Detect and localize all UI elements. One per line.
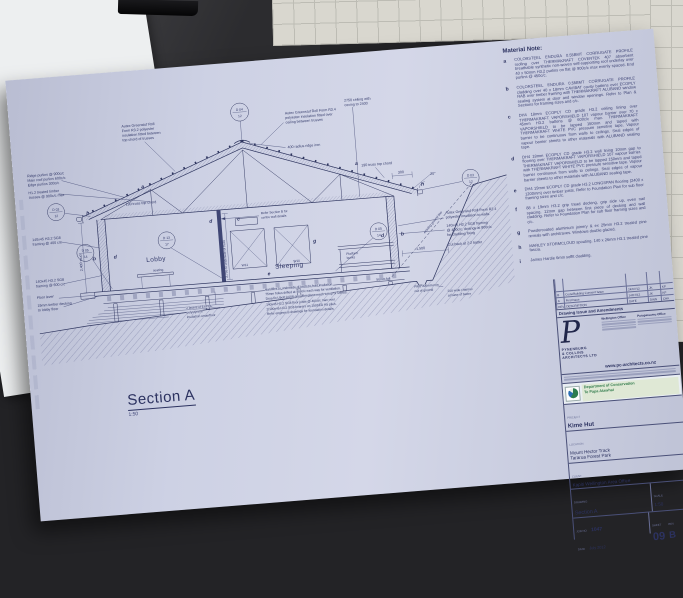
svg-text:d: d — [381, 233, 385, 239]
architect-logo-initial: P — [559, 317, 603, 348]
svg-text:h: h — [421, 182, 425, 188]
material-key-letters: a a h h c d b d d b e g — [84, 156, 431, 292]
svg-text:D 05: D 05 — [82, 248, 89, 253]
lobby-seating-bench — [137, 272, 173, 277]
svg-text:g: g — [312, 238, 317, 244]
svg-text:h: h — [86, 210, 90, 216]
date-value: July 2012 — [589, 545, 606, 550]
svg-text:17: 17 — [165, 242, 169, 246]
svg-text:D 03: D 03 — [52, 207, 59, 212]
svg-text:D 03: D 03 — [467, 173, 474, 178]
office-paraparaumu: Paraparaumu Office — [637, 311, 675, 345]
truss — [96, 138, 394, 219]
architect-logo-block: P PYNENBURG & COLLINS ARCHITECTS LTD Wel… — [557, 308, 679, 374]
svg-text:a: a — [355, 161, 358, 167]
svg-text:framing @ 600 c/c: framing @ 600 c/c — [36, 282, 66, 288]
seating-label: seating — [153, 268, 164, 273]
svg-text:coving to 2400: coving to 2400 — [344, 101, 368, 107]
refer-section-b-2: centre wall details — [261, 214, 287, 220]
svg-text:b: b — [93, 256, 97, 262]
title-block: B Code/Building Consent Issue 24/07/12 J… — [553, 270, 683, 540]
detail-circle-d04: D 04 12 — [230, 102, 249, 121]
window-w10-label: W10 — [293, 259, 300, 264]
svg-text:e: e — [267, 271, 270, 277]
svg-text:400 radius ridge iron: 400 radius ridge iron — [287, 143, 320, 150]
material-note: Material Note: a COLORSTEEL ENDURA 0.55B… — [502, 38, 649, 269]
svg-text:12: 12 — [238, 114, 242, 118]
detail-circle-d05-right: D 05 14 — [369, 222, 387, 240]
job-number: 1047 — [591, 527, 603, 534]
photo-of-architectural-drawing: { "sheet": { "material_note": { "title":… — [0, 0, 683, 512]
svg-text:Floor level: Floor level — [37, 295, 54, 300]
drawing-scale: 1:50 — [654, 500, 683, 508]
detail-circle-d03-left: D 03 12 — [47, 203, 65, 221]
svg-text:1,500: 1,500 — [416, 246, 425, 251]
svg-text:d: d — [209, 219, 213, 225]
svg-text:d: d — [114, 254, 118, 260]
svg-text:300: 300 — [398, 170, 404, 174]
svg-text:12: 12 — [54, 214, 58, 218]
window-w11-label: W11 — [242, 263, 249, 268]
section-title-block: Section A 1:50 — [127, 387, 197, 418]
room-label-sleeping: Sleeping — [275, 261, 304, 270]
spouting-right — [417, 190, 422, 194]
detail-circle-d13: D 13 17 — [157, 231, 175, 249]
room-label-lobby: Lobby — [146, 255, 167, 264]
svg-text:D 13: D 13 — [163, 236, 170, 241]
office-wellington: Wellington Office — [601, 314, 639, 348]
bunks-label-2: bunks — [346, 255, 355, 260]
svg-text:14: 14 — [84, 255, 88, 259]
spouting-left — [77, 217, 82, 221]
revision-letter: B — [669, 530, 677, 543]
svg-text:20°: 20° — [430, 172, 436, 176]
svg-text:190 truss top chord: 190 truss top chord — [361, 161, 392, 167]
svg-text:to lobby floor: to lobby floor — [38, 307, 60, 313]
doc-logo — [565, 385, 581, 401]
svg-text:D 05: D 05 — [375, 227, 382, 232]
section-a-drawing: D 04 12 D 03 12 D 03 12 D 05 14 D 13 — [22, 72, 559, 412]
svg-text:framing @ 400 c/c: framing @ 400 c/c — [32, 240, 62, 246]
svg-text:b: b — [401, 231, 405, 237]
svg-text:a: a — [141, 184, 144, 190]
black-object-on-desk — [118, 0, 198, 16]
svg-text:existing ground line: existing ground line — [423, 210, 444, 234]
svg-text:12: 12 — [469, 180, 473, 184]
material-note-item: c DH4 18mm ECOPLY CD grade H3.2 ceiling … — [508, 104, 641, 151]
drawing-sheet: D 04 12 D 03 12 D 03 12 D 05 14 D 13 — [5, 29, 683, 522]
svg-text:D 04: D 04 — [236, 107, 243, 112]
sheet-number: 09 — [653, 531, 666, 544]
